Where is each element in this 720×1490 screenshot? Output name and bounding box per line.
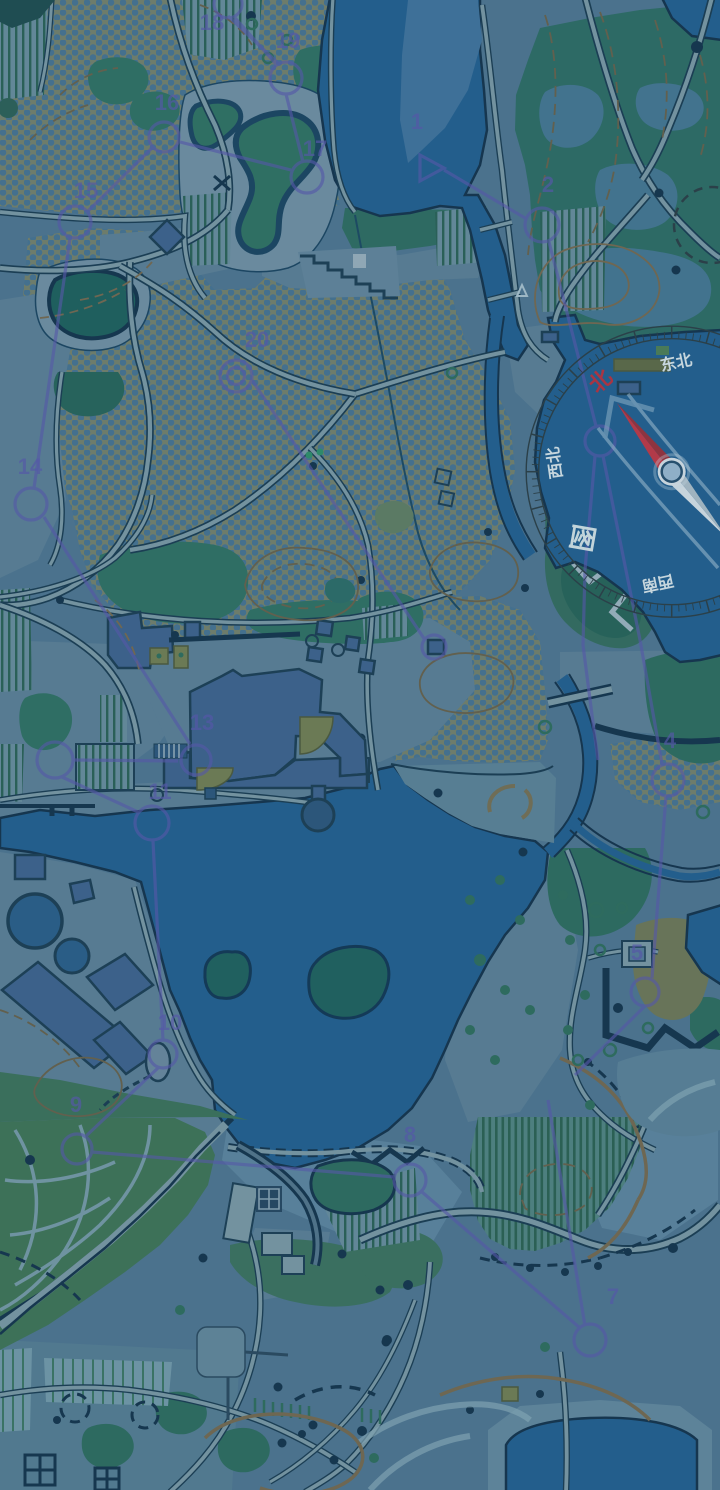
- svg-text:7: 7: [607, 1284, 619, 1309]
- svg-text:5: 5: [631, 940, 643, 965]
- svg-text:图: 图: [565, 522, 599, 554]
- svg-text:20: 20: [245, 327, 269, 352]
- svg-text:8: 8: [404, 1122, 416, 1147]
- svg-text:18: 18: [200, 10, 224, 35]
- svg-text:11: 11: [148, 779, 171, 804]
- svg-text:2: 2: [542, 172, 554, 197]
- svg-text:15: 15: [74, 178, 98, 203]
- svg-text:14: 14: [18, 454, 43, 479]
- svg-text:19: 19: [276, 28, 300, 53]
- svg-text:16: 16: [155, 90, 179, 115]
- svg-text:1: 1: [411, 109, 423, 134]
- svg-text:17: 17: [303, 136, 327, 161]
- svg-text:9: 9: [70, 1092, 82, 1117]
- svg-text:10: 10: [158, 1010, 182, 1035]
- svg-text:4: 4: [664, 728, 677, 753]
- svg-text:13: 13: [190, 710, 214, 735]
